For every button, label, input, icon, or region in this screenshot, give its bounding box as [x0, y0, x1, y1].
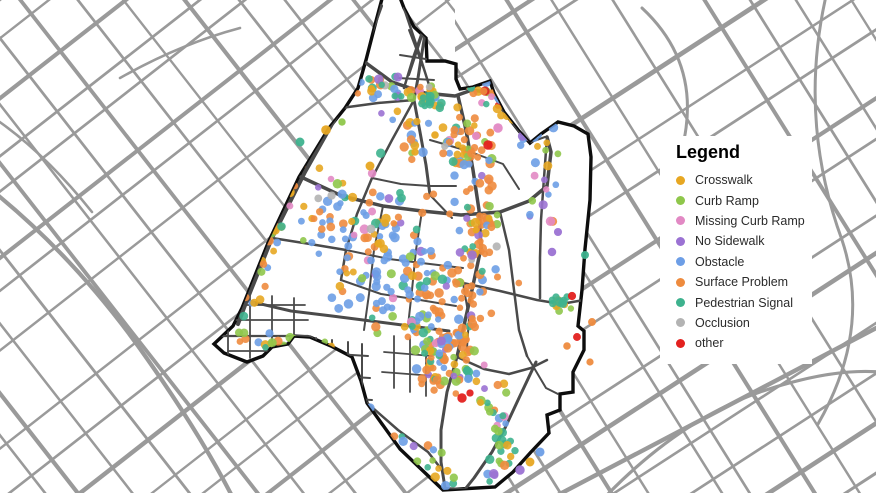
- map-dot: [405, 334, 412, 341]
- map-dot: [461, 288, 469, 296]
- map-dot: [316, 250, 323, 257]
- map-dot: [430, 191, 437, 198]
- map-dot: [573, 333, 581, 341]
- map-dot: [398, 437, 407, 446]
- map-dot: [379, 306, 387, 314]
- map-dot: [581, 251, 589, 259]
- map-dot: [502, 420, 509, 427]
- map-dot: [441, 357, 448, 364]
- map-dot: [477, 238, 484, 245]
- legend-item-obstacle: Obstacle: [676, 252, 806, 272]
- map-dot: [418, 209, 426, 217]
- map-dot: [568, 292, 576, 300]
- map-dot: [422, 366, 431, 375]
- map-dot: [401, 323, 409, 331]
- map-dot: [487, 309, 495, 317]
- map-dot: [328, 236, 335, 243]
- map-dot: [268, 338, 277, 347]
- map-dot: [344, 299, 354, 309]
- map-dot: [435, 465, 442, 472]
- map-dot: [321, 125, 331, 135]
- legend-label: Occlusion: [695, 316, 750, 330]
- map-dot: [378, 82, 384, 88]
- map-dot: [473, 377, 481, 385]
- map-dot: [479, 268, 486, 275]
- map-dot: [499, 412, 506, 419]
- map-dot: [543, 139, 550, 146]
- map-dot: [350, 269, 357, 276]
- map-dot: [554, 150, 561, 157]
- legend-swatch-ns: [676, 237, 685, 246]
- map-dot: [454, 314, 464, 324]
- map-dot: [360, 209, 367, 216]
- map-dot: [476, 288, 483, 295]
- map-dot: [398, 93, 405, 100]
- map-dot: [426, 83, 433, 90]
- map-dot: [470, 346, 479, 355]
- legend-label: other: [695, 336, 724, 350]
- map-dot: [348, 218, 355, 225]
- map-dot: [485, 157, 492, 164]
- map-dot: [239, 312, 248, 321]
- legend-label: Curb Ramp: [695, 194, 759, 208]
- map-dot: [368, 85, 375, 92]
- map-dot: [240, 329, 249, 338]
- map-dot: [424, 270, 430, 276]
- map-dot: [469, 243, 476, 250]
- map-dot: [450, 354, 457, 361]
- map-dot: [477, 399, 484, 406]
- map-dot: [473, 370, 481, 378]
- map-dot: [445, 336, 452, 343]
- map-dot: [483, 101, 489, 107]
- map-dot: [381, 257, 388, 264]
- map-dot: [385, 194, 394, 203]
- map-dot: [434, 288, 443, 297]
- map-dot: [344, 254, 351, 261]
- map-dot: [367, 225, 376, 234]
- map-dot: [425, 120, 432, 127]
- map-dot: [316, 208, 323, 215]
- map-dot: [381, 219, 388, 226]
- map-dot: [333, 202, 342, 211]
- map-dot: [404, 286, 411, 293]
- map-dot: [318, 225, 326, 233]
- legend-item-occlusion: Occlusion: [676, 313, 806, 333]
- map-dot: [463, 215, 470, 222]
- map-dot: [371, 322, 380, 331]
- map-dot: [447, 268, 457, 278]
- legend-label: Pedestrian Signal: [695, 296, 793, 310]
- map-dot: [411, 148, 418, 155]
- map-dot: [378, 110, 385, 117]
- map-dot: [432, 376, 441, 385]
- map-dot: [486, 408, 494, 416]
- map-dot: [543, 161, 552, 170]
- map-dot: [389, 294, 397, 302]
- map-dot: [451, 360, 459, 368]
- map-dot: [503, 441, 512, 450]
- map-dot: [485, 455, 494, 464]
- map-dot: [365, 199, 373, 207]
- map-dot: [328, 176, 335, 183]
- map-dot: [365, 248, 372, 255]
- map-dot: [486, 478, 493, 485]
- map-dot: [314, 195, 322, 203]
- map-dot: [491, 471, 499, 479]
- map-dot: [356, 293, 365, 302]
- legend: Legend CrosswalkCurb RampMissing Curb Ra…: [660, 136, 812, 364]
- map-dot: [338, 190, 347, 199]
- map-dot: [286, 202, 293, 209]
- map-dot: [419, 328, 428, 337]
- map-dot: [563, 342, 571, 350]
- map-dot: [423, 277, 431, 285]
- map-dot: [458, 343, 467, 352]
- legend-label: Crosswalk: [695, 173, 753, 187]
- map-dot: [470, 300, 477, 307]
- map-dot: [421, 350, 428, 357]
- map-dot: [366, 162, 375, 171]
- map-dot: [481, 385, 488, 392]
- map-dot: [457, 393, 466, 402]
- map-dot: [502, 389, 510, 397]
- map-dot: [400, 142, 409, 151]
- map-dot: [486, 249, 494, 256]
- map-dot: [408, 156, 415, 163]
- map-dot: [441, 364, 448, 371]
- map-dot: [342, 235, 349, 242]
- map-dot: [256, 295, 265, 304]
- map-dot: [413, 118, 420, 125]
- legend-swatch-ps: [676, 298, 685, 307]
- legend-item-missing-curb-ramp: Missing Curb Ramp: [676, 211, 806, 231]
- map-dot: [467, 250, 477, 260]
- map-dot: [486, 215, 493, 222]
- map-dot: [444, 261, 452, 269]
- map-dot: [435, 328, 442, 335]
- map-dot: [300, 237, 307, 244]
- map-dot: [450, 474, 458, 482]
- map-dot: [491, 265, 499, 273]
- map-dot: [373, 300, 380, 307]
- map-dot: [450, 296, 457, 303]
- map-dot: [390, 85, 398, 93]
- map-dot: [443, 467, 451, 475]
- map-dot: [469, 315, 476, 322]
- map-dot: [531, 158, 540, 167]
- legend-item-curb-ramp: Curb Ramp: [676, 190, 806, 210]
- map-dot: [459, 144, 466, 151]
- legend-swatch-cr: [676, 196, 685, 205]
- legend-swatch-mcr: [676, 216, 685, 225]
- map-dot: [493, 242, 501, 250]
- map-dot: [311, 215, 318, 222]
- map-dot: [270, 248, 277, 255]
- map-dot: [477, 315, 484, 322]
- map-dot: [261, 283, 268, 290]
- map-dot: [395, 214, 402, 221]
- map-dot: [333, 179, 342, 188]
- legend-swatch-sp: [676, 278, 685, 287]
- map-dot: [315, 184, 321, 190]
- map-dot: [495, 441, 504, 450]
- map-dot: [409, 323, 416, 330]
- map-dot: [481, 362, 488, 369]
- map-dot: [367, 257, 375, 265]
- map-dot: [260, 260, 267, 267]
- map-dot: [344, 270, 350, 276]
- map-dot: [428, 354, 435, 361]
- map-dot: [436, 349, 444, 357]
- map-dot: [486, 129, 494, 137]
- map-dot: [456, 227, 464, 235]
- map-dot: [327, 191, 335, 199]
- map-dot: [535, 447, 544, 456]
- map-dot: [552, 293, 559, 300]
- map-dot: [376, 149, 385, 158]
- map-dot: [369, 314, 376, 321]
- map-dot: [554, 228, 562, 236]
- map-dot: [534, 143, 541, 150]
- map-dot: [389, 231, 397, 239]
- map-dot: [412, 364, 422, 374]
- map-dot: [542, 147, 549, 154]
- map-dot: [472, 132, 480, 140]
- map-dot: [467, 149, 476, 158]
- map-dot: [541, 176, 548, 183]
- map-dot: [344, 242, 352, 250]
- map-dot: [424, 464, 431, 471]
- map-dot: [408, 271, 417, 280]
- map-dot: [468, 282, 475, 289]
- map-dot: [526, 211, 534, 219]
- legend-label: No Sidewalk: [695, 234, 764, 248]
- legend-swatch-ob: [676, 257, 685, 266]
- map-dot: [336, 282, 345, 291]
- map-dot: [439, 123, 448, 132]
- map-dot: [515, 465, 524, 474]
- map-dot: [363, 233, 372, 242]
- map-dot: [423, 337, 431, 345]
- map-dot: [487, 223, 495, 231]
- map-dot: [369, 189, 377, 197]
- map-dot: [463, 366, 471, 374]
- map-dot: [517, 142, 524, 149]
- map-dot: [453, 103, 461, 111]
- map-dot: [464, 375, 472, 383]
- map-dot: [316, 164, 324, 172]
- map-dot: [494, 381, 502, 389]
- map-dot: [471, 218, 481, 228]
- map-dot: [393, 72, 402, 81]
- map-dot: [471, 122, 478, 129]
- legend-label: Missing Curb Ramp: [695, 214, 805, 228]
- map-dot: [450, 171, 458, 179]
- map-dot: [388, 312, 397, 321]
- legend-label: Obstacle: [695, 255, 744, 269]
- map-dot: [428, 323, 435, 330]
- map-dot: [449, 157, 458, 166]
- map-dot: [426, 92, 435, 101]
- legend-item-surface-problem: Surface Problem: [676, 272, 806, 292]
- map-dot: [548, 248, 557, 257]
- map-dot: [277, 222, 286, 231]
- map-dot: [397, 194, 406, 203]
- map-dot: [410, 442, 418, 450]
- map-dot: [296, 138, 305, 147]
- map-dot: [588, 318, 596, 326]
- map-dot: [456, 248, 465, 257]
- map-dot: [387, 288, 394, 295]
- map-dot: [411, 345, 421, 355]
- map-dot: [427, 247, 435, 255]
- map-dot: [450, 198, 458, 206]
- map-dot: [515, 280, 522, 287]
- map-dot: [456, 114, 463, 121]
- map-dot: [358, 274, 366, 282]
- legend-item-pedestrian-signal: Pedestrian Signal: [676, 292, 806, 312]
- map-dot: [511, 447, 518, 454]
- map-dot: [480, 88, 487, 95]
- map-dot: [425, 311, 432, 318]
- map-dot: [439, 149, 447, 157]
- legend-title: Legend: [676, 142, 806, 163]
- map-dot: [300, 203, 307, 210]
- map-dot: [473, 227, 480, 234]
- map-dot: [388, 304, 395, 311]
- legend-label: Surface Problem: [695, 275, 788, 289]
- map-dot: [391, 93, 398, 100]
- map-dot: [319, 219, 326, 226]
- map-dot: [458, 324, 467, 333]
- map-dot: [374, 240, 382, 248]
- map-dot: [430, 446, 437, 453]
- map-dot: [485, 202, 494, 211]
- legend-item-other: other: [676, 333, 806, 353]
- map-dot: [402, 259, 410, 267]
- map-dot: [338, 118, 345, 125]
- map-dot: [471, 114, 479, 122]
- map-dot: [390, 220, 397, 227]
- map-dot: [415, 312, 424, 321]
- map-dot: [365, 75, 373, 83]
- map-dot: [426, 101, 434, 109]
- map-dot: [453, 280, 461, 288]
- map-dot: [418, 148, 428, 158]
- map-dot: [438, 274, 448, 284]
- map-dot: [413, 226, 421, 234]
- map-dot: [377, 233, 384, 240]
- map-dot: [328, 293, 337, 302]
- map-dot: [494, 273, 501, 280]
- map-dot: [546, 217, 555, 226]
- map-dot: [493, 123, 503, 133]
- map-dot: [298, 218, 305, 225]
- legend-swatch-oc: [676, 318, 685, 327]
- map-dot: [430, 305, 437, 312]
- map-dot: [463, 120, 471, 128]
- map-dot: [414, 296, 421, 303]
- map-dot: [441, 143, 448, 150]
- map-dot: [494, 212, 501, 219]
- map-dot: [500, 461, 509, 470]
- map-dot: [441, 481, 450, 490]
- map-dot: [394, 108, 402, 116]
- map-dot: [374, 90, 382, 98]
- map-dot: [487, 181, 496, 190]
- map-dot: [539, 200, 548, 209]
- legend-swatch-cw: [676, 176, 685, 185]
- legend-item-crosswalk: Crosswalk: [676, 170, 806, 190]
- map-dot: [488, 93, 495, 100]
- map-dot: [420, 94, 427, 101]
- map-dot: [464, 204, 471, 211]
- map-dot: [368, 208, 376, 216]
- map-dot: [336, 268, 343, 275]
- map-dot: [450, 126, 458, 134]
- map-dot: [543, 186, 549, 192]
- map-dot: [407, 135, 416, 144]
- map-dot: [435, 316, 441, 322]
- map-dot: [463, 188, 470, 195]
- map-dot: [483, 140, 492, 149]
- map-dot: [491, 425, 499, 433]
- map-dot: [450, 373, 457, 380]
- map-dot: [265, 329, 273, 337]
- map-dot: [466, 389, 473, 396]
- map-dot: [552, 181, 559, 188]
- map-dot: [340, 226, 347, 233]
- map-dot: [421, 248, 427, 254]
- map-dot: [568, 305, 574, 311]
- map-dot: [326, 223, 335, 232]
- map-dot: [407, 93, 416, 102]
- map-dot: [439, 298, 446, 305]
- map-dot: [476, 179, 485, 188]
- map-dot: [438, 449, 446, 457]
- map-dot: [549, 300, 556, 307]
- map-dot: [257, 268, 265, 276]
- map-dot: [529, 197, 537, 205]
- map-dot: [463, 356, 470, 363]
- legend-item-no-sidewalk: No Sidewalk: [676, 231, 806, 251]
- map-dot: [459, 160, 468, 169]
- map-dot: [437, 336, 446, 345]
- map-dot: [461, 136, 468, 143]
- map-dot: [429, 457, 436, 464]
- map-dot: [462, 331, 469, 338]
- map-dot: [430, 387, 437, 394]
- map-dot: [417, 84, 424, 91]
- map-dot: [586, 358, 593, 365]
- legend-swatch-ot: [676, 339, 685, 348]
- map-dot: [526, 458, 535, 467]
- map-dot: [387, 269, 396, 278]
- map-dot: [457, 305, 464, 312]
- legend-items: CrosswalkCurb RampMissing Curb RampNo Si…: [676, 170, 806, 354]
- map-dot: [531, 172, 539, 180]
- map-dot: [458, 295, 465, 302]
- map-dot: [376, 192, 384, 200]
- map-dot: [308, 239, 315, 246]
- map-dot: [417, 258, 425, 266]
- map-dot: [423, 193, 430, 200]
- map-dot: [334, 304, 343, 313]
- map-dot: [431, 131, 439, 139]
- map-dot: [348, 193, 357, 202]
- map-dot: [373, 278, 380, 285]
